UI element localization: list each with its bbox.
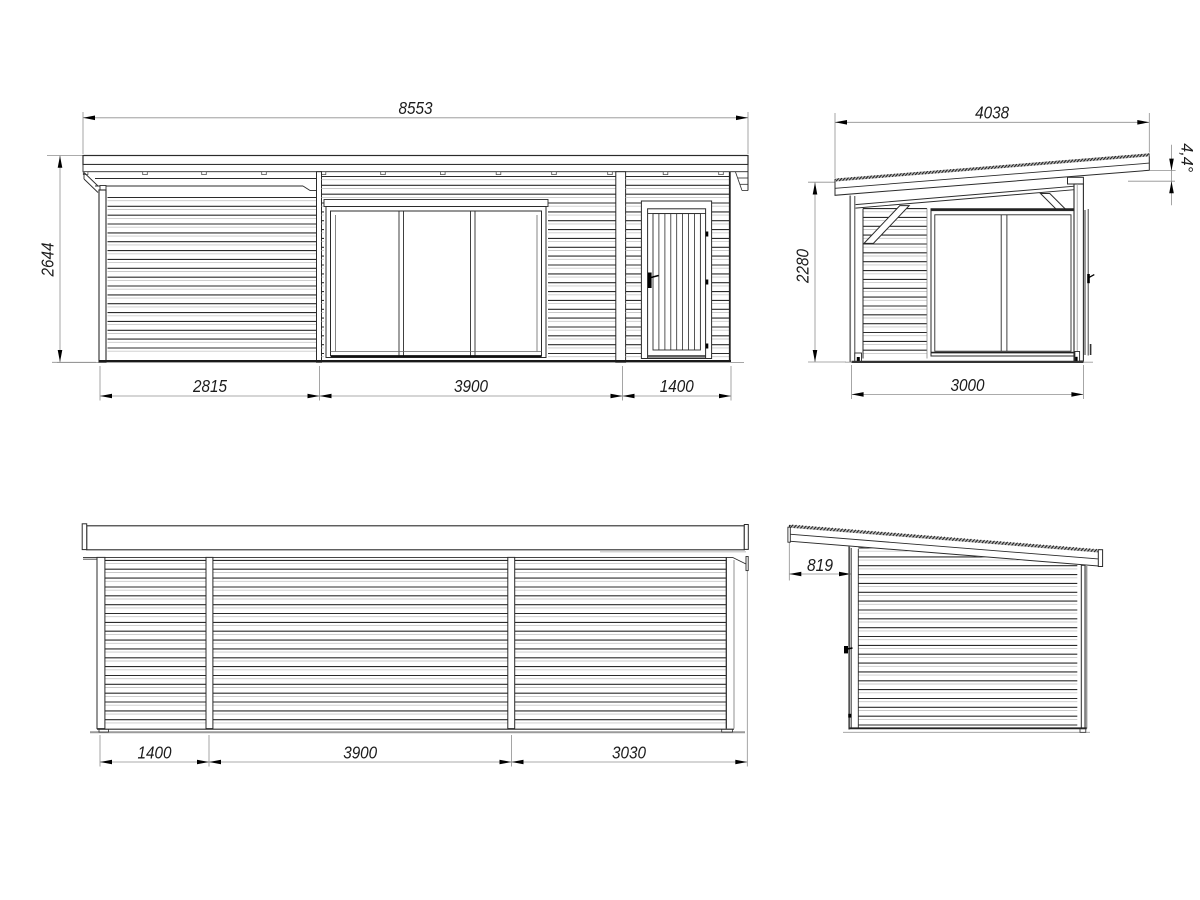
svg-text:4,4°: 4,4° xyxy=(1177,143,1195,172)
svg-text:3900: 3900 xyxy=(343,742,377,762)
svg-text:2644: 2644 xyxy=(38,242,58,277)
svg-text:3900: 3900 xyxy=(454,376,488,396)
svg-text:2815: 2815 xyxy=(192,376,227,396)
svg-text:2280: 2280 xyxy=(793,249,813,284)
svg-text:4038: 4038 xyxy=(975,103,1009,123)
svg-text:8553: 8553 xyxy=(399,98,433,118)
svg-text:3000: 3000 xyxy=(951,375,985,395)
svg-text:1400: 1400 xyxy=(660,376,694,396)
svg-text:3030: 3030 xyxy=(612,742,646,762)
svg-text:819: 819 xyxy=(807,555,833,575)
svg-text:1400: 1400 xyxy=(138,742,172,762)
